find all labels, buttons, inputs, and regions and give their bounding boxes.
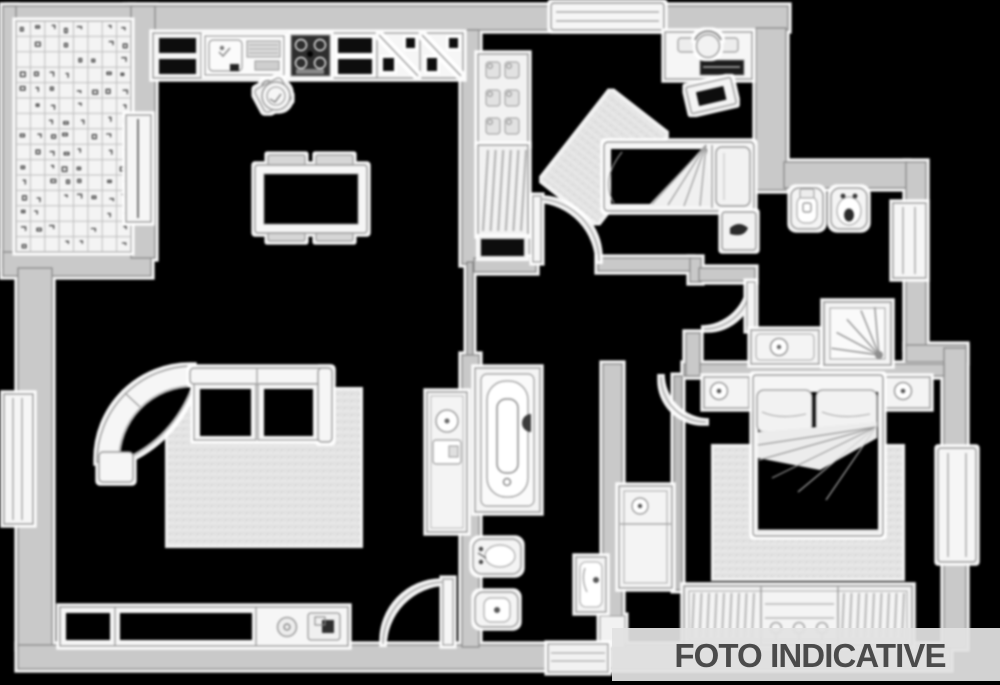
svg-text:FOTO INDICATIVE: FOTO INDICATIVE (674, 637, 945, 674)
